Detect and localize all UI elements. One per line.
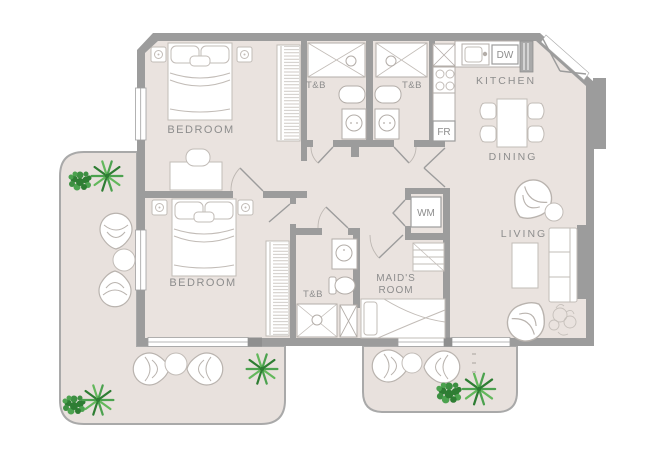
dining-label: DINING (489, 151, 538, 163)
bathtub-2 (375, 86, 401, 103)
shower-3 (297, 304, 337, 337)
dw-label: DW (497, 50, 514, 61)
living-label: LIVING (501, 228, 547, 240)
terrace-table (402, 353, 422, 373)
door-threshold-right (444, 338, 452, 347)
right-wall-column (593, 78, 606, 149)
shaft-kitchen (433, 44, 455, 66)
right-wall-pilaster (577, 225, 586, 299)
dining-chair (480, 126, 496, 142)
linen-shelf (413, 243, 444, 271)
bathtub-1 (339, 86, 365, 103)
bed-double-1 (168, 43, 232, 120)
shower-1 (308, 43, 365, 77)
nightstand (238, 200, 253, 215)
tb1-label: T&B (306, 80, 326, 91)
window-maids-bottom (398, 338, 444, 347)
sink-3 (332, 239, 357, 269)
entry-closet (520, 41, 533, 72)
bedroom1-label: BEDROOM (167, 124, 234, 136)
window-living-bottom (452, 338, 510, 347)
terrace-table (113, 249, 135, 271)
floor-plan-page: BEDROOM BEDROOM T&B (0, 0, 660, 464)
maids-room-label-line2: ROOM (378, 285, 413, 296)
side-table (545, 203, 563, 221)
terrace-table (165, 353, 187, 375)
wardrobe-1 (277, 45, 300, 141)
fridge: FR (433, 121, 455, 141)
kitchen-counter-left (433, 93, 455, 121)
floor-plan: BEDROOM BEDROOM T&B (0, 0, 660, 464)
kitchen-label: KITCHEN (476, 75, 536, 87)
washing-machine: WM (411, 197, 441, 227)
sink-1 (342, 109, 366, 139)
dining-chair (528, 103, 544, 119)
fr-label: FR (437, 127, 450, 138)
shower-2 (376, 43, 427, 77)
toilet (329, 277, 355, 294)
dining: DINING (480, 99, 544, 163)
dining-chair (480, 103, 496, 119)
stove (433, 67, 455, 93)
nightstand (151, 47, 166, 62)
shaft (340, 305, 357, 337)
tb2-label: T&B (402, 80, 422, 91)
sofa (549, 228, 577, 302)
window-bedroom2-left (136, 230, 147, 290)
nightstand (152, 200, 167, 215)
wm-label: WM (417, 208, 435, 219)
dishwasher: DW (492, 45, 518, 64)
kitchen-sink (462, 44, 489, 65)
coffee-table (512, 243, 538, 288)
window-bedroom1-left (136, 88, 147, 140)
bed-double-2 (172, 199, 236, 276)
nightstand (237, 47, 252, 62)
window-bedroom2-bottom (148, 338, 248, 347)
door-threshold-left (248, 338, 262, 347)
wardrobe-2 (266, 241, 289, 336)
dining-table (497, 99, 527, 147)
dining-chair (528, 126, 544, 142)
sink-2 (375, 109, 399, 139)
bed-single (361, 299, 445, 338)
bedroom2-label: BEDROOM (169, 277, 236, 289)
maids-room-label-line1: MAID'S (376, 273, 416, 284)
tb3-label: T&B (303, 289, 323, 300)
